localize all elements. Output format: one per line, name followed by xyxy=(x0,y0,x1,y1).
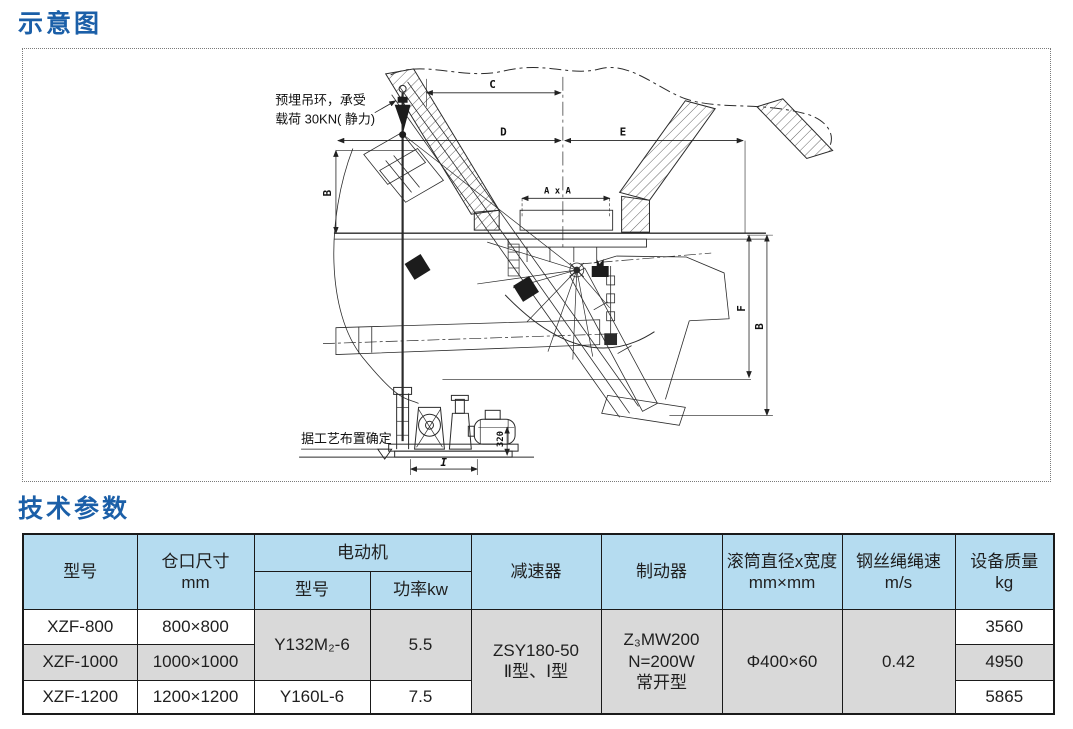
col-header-rope-speed: 钢丝绳绳速 m/s xyxy=(842,534,955,609)
dim-label-b-left: B xyxy=(321,189,334,196)
col-header-opening: 仓口尺寸 mm xyxy=(137,534,254,609)
cell-opening-r3: 1200×1200 xyxy=(137,680,254,714)
col-header-reducer: 减速器 xyxy=(471,534,601,609)
schematic-title: 示意图 xyxy=(18,12,102,37)
params-title: 技术参数 xyxy=(18,497,130,522)
col-header-mass: 设备质量 kg xyxy=(955,534,1054,609)
col-header-brake: 制动器 xyxy=(601,534,722,609)
lifting-note-line1: 预埋吊环，承受 xyxy=(275,93,366,108)
dim-label-b-right: B xyxy=(753,323,766,330)
schematic-panel: 预埋吊环，承受 载荷 30KN( 静力) 据工艺布置确定 C D E A x A… xyxy=(22,48,1051,482)
cell-mass-r3: 5865 xyxy=(955,680,1054,714)
cell-mass-r2: 4950 xyxy=(955,644,1054,680)
col-header-motor-group: 电动机 xyxy=(254,534,471,571)
dim-label-c: C xyxy=(489,78,496,91)
schematic-drawing: 预埋吊环，承受 载荷 30KN( 静力) 据工艺布置确定 C D E A x A… xyxy=(23,49,1050,481)
cell-motor-model-r3: Y160L-6 xyxy=(254,680,370,714)
cell-model-r3: XZF-1200 xyxy=(23,680,137,714)
cell-drum: Φ400×60 xyxy=(722,609,842,714)
dim-label-f: F xyxy=(735,305,748,312)
cell-mass-r1: 3560 xyxy=(955,609,1054,644)
cell-model-r2: XZF-1000 xyxy=(23,644,137,680)
cell-motor-power-r3: 7.5 xyxy=(370,680,471,714)
cell-reducer: ZSY180-50 Ⅱ型、Ⅰ型 xyxy=(471,609,601,714)
col-header-motor-model: 型号 xyxy=(254,571,370,609)
dim-label-d: D xyxy=(500,126,507,139)
dim-label-i: I xyxy=(440,456,447,469)
lifting-note-line2: 载荷 30KN( 静力) xyxy=(275,112,375,127)
cell-rope-speed: 0.42 xyxy=(842,609,955,714)
col-header-motor-power: 功率kw xyxy=(370,571,471,609)
cell-opening-r1: 800×800 xyxy=(137,609,254,644)
cell-motor-power-r12: 5.5 xyxy=(370,609,471,680)
dim-label-320: 320 xyxy=(496,431,506,447)
col-header-model: 型号 xyxy=(23,534,137,609)
params-table: 型号 仓口尺寸 mm 电动机 减速器 制动器 滚筒直径x宽度 mm×mm 钢丝绳… xyxy=(22,533,1055,715)
hopper-walls xyxy=(334,67,833,275)
dim-label-axa: A x A xyxy=(544,186,572,196)
col-header-drum: 滚筒直径x宽度 mm×mm xyxy=(722,534,842,609)
dimension-lines xyxy=(301,79,773,475)
process-note: 据工艺布置确定 xyxy=(301,431,392,446)
cell-model-r1: XZF-800 xyxy=(23,609,137,644)
dim-label-e: E xyxy=(620,126,627,139)
cell-opening-r2: 1000×1000 xyxy=(137,644,254,680)
cell-brake: Z₃MW200 N=200W 常开型 xyxy=(601,609,722,714)
cell-motor-model-r12: Y132M₂-6 xyxy=(254,609,370,680)
